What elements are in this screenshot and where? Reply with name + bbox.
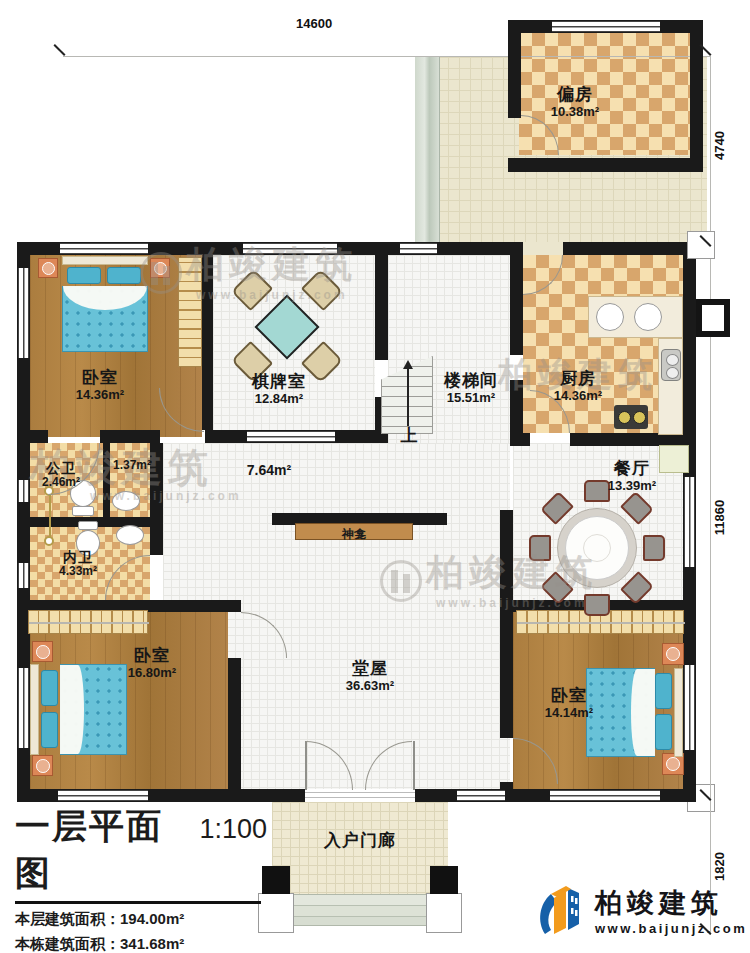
stat-building-area: 本栋建筑面积：341.68m² [15,935,267,953]
wall [500,607,513,738]
nightstand [662,643,684,665]
room-label-vestibule: 1.37m² [102,459,162,473]
wall [375,255,388,360]
window [58,790,148,801]
wall [205,430,213,443]
bed [62,256,148,352]
dimension-right-middle: 11860 [712,492,727,544]
entrance-threshold [305,789,415,802]
interior-window [247,431,335,442]
bed-headboard [62,256,148,265]
dimension-top: 14600 [296,16,332,31]
room-label-bedroom-topleft: 卧室 14.36m² [50,368,150,402]
pillow [67,267,101,284]
window [684,477,695,567]
room-label-corridor: 7.64m² [236,462,302,478]
window [18,563,29,588]
nightstand [32,755,53,776]
wardrobe [178,257,202,367]
dimension-line-top [63,56,710,57]
terrace-door-opening [523,242,563,255]
brand-logo: 柏竣建筑 www.baijunjz.com [537,882,747,938]
stove [614,405,648,429]
porch-column [430,866,458,894]
chair [643,535,665,561]
porch-column-base [426,893,462,933]
stair-arrow-head [403,360,413,369]
page-title: 一层平面图 [15,803,185,897]
brand-logo-icon [537,882,587,938]
sink-basin [666,354,679,366]
window [18,668,29,748]
toilet-tank [72,506,94,516]
window [243,243,337,254]
bed-headboard [674,668,683,757]
bed-sheet [60,665,84,754]
wall [100,430,160,443]
room-label-kitchen: 厨房 14.36m² [528,369,628,403]
bed-headboard [30,664,39,755]
pillow [41,712,58,748]
wall [500,782,513,789]
room-label-bedroom-bottomright: 卧室 14.14m² [529,686,609,720]
kitchen-sink [661,349,681,381]
dimension-tick [53,44,65,56]
window [457,790,505,801]
room-label-neiwei: 内卫 4.33m² [48,549,108,579]
pillow [41,670,58,706]
window [60,243,148,254]
room-label-qipai: 棋牌室 12.84m² [229,372,329,406]
burner [618,411,631,424]
scale-label: 1:100 [199,814,267,845]
title-underline [15,901,261,904]
room-label-porch: 入户门廊 [295,831,425,851]
room-label-bedroom-bottomleft: 卧室 16.80m² [112,646,192,680]
room-label-gongwei: 公卫 2.46m² [33,460,89,490]
window [400,243,437,254]
nightstand [32,641,53,662]
brand-url: www.baijunjz.com [595,921,747,936]
pillow [655,673,672,709]
room-label-pianfang: 偏房 10.38m² [535,85,615,119]
wall [103,443,110,517]
window [552,21,660,32]
stat-floor-area: 本层建筑面积：194.00m² [15,910,267,929]
wardrobe [28,610,148,634]
dining-table [557,508,637,588]
porch-steps [290,894,434,926]
nightstand [38,258,58,278]
wall [17,430,48,443]
wall [228,658,241,789]
brand-name: 柏竣建筑 [595,885,747,921]
counter-stool [634,303,662,331]
sink-basin [666,367,679,379]
wall [500,510,513,607]
dimension-right-upper: 4740 [712,124,727,168]
window [684,665,695,750]
burner [633,411,646,424]
towel-rail [49,492,51,540]
room-label-louti: 楼梯间 15.51m² [421,371,521,405]
chair [529,535,551,561]
chimney [696,299,730,337]
sink [116,525,144,545]
floor-plan: 神龛 上 柏竣建筑 www.baijunjz.com 柏竣建筑 www.baij… [0,0,750,953]
pillow [107,267,141,284]
wall [510,433,530,446]
counter-stool [596,303,624,331]
entrance-door-leaf [413,741,415,790]
window [18,268,29,358]
chair [584,594,610,616]
window [550,790,660,801]
title-block: 一层平面图 1:100 本层建筑面积：194.00m² 本栋建筑面积：341.6… [15,803,267,953]
wall [508,158,703,172]
wall [690,20,703,172]
pillow [655,714,672,750]
terrace-edge [415,57,440,243]
lazy-susan [583,534,611,562]
wardrobe-rail [517,622,685,624]
stair-arrow-line [407,368,409,426]
stair-up-label: 上 [396,426,422,446]
toilet-tank [78,521,98,530]
shrine-label: 神龛 [342,527,366,541]
bed-sheet [631,669,655,756]
sink [112,491,140,511]
nightstand [150,258,170,278]
room-label-hall: 堂屋 36.63m² [320,659,420,693]
rail-knob [44,536,54,546]
wardrobe-rail [29,622,149,624]
shrine-table: 神龛 [295,523,413,540]
wall [510,255,523,355]
room-label-dining: 餐厅 13.39m² [582,459,682,493]
wall [508,20,521,118]
window [18,480,29,502]
